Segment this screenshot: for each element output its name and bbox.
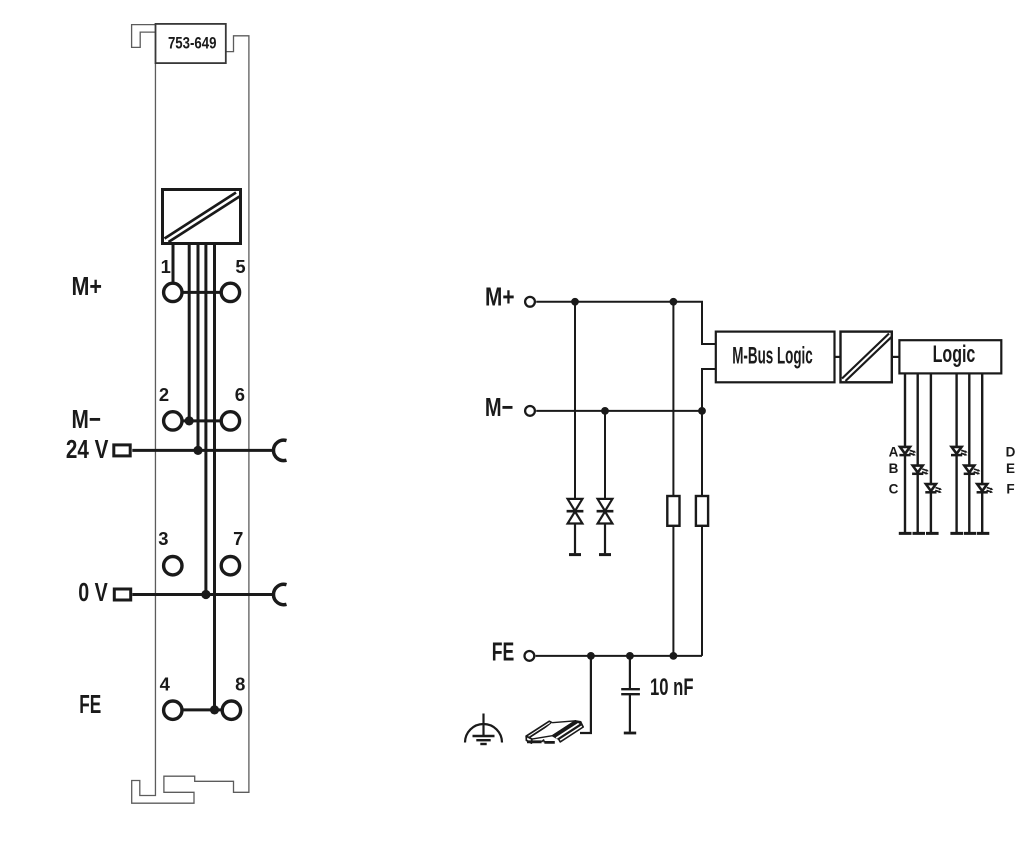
svg-text:0 V: 0 V	[78, 577, 108, 607]
svg-text:M−: M−	[72, 404, 102, 434]
svg-text:24 V: 24 V	[66, 434, 109, 464]
svg-text:B: B	[889, 461, 899, 476]
svg-text:3: 3	[158, 528, 168, 549]
svg-text:6: 6	[235, 384, 245, 405]
svg-text:5: 5	[235, 256, 245, 277]
svg-text:A: A	[889, 445, 899, 460]
svg-text:M-Bus Logic: M-Bus Logic	[732, 342, 813, 369]
svg-text:M−: M−	[485, 392, 514, 422]
svg-text:M+: M+	[72, 271, 103, 301]
svg-text:Logic: Logic	[933, 341, 976, 368]
svg-text:7: 7	[233, 528, 243, 549]
svg-text:2: 2	[159, 384, 169, 405]
svg-text:4: 4	[160, 674, 171, 695]
svg-text:E: E	[1006, 461, 1015, 476]
svg-text:D: D	[1006, 445, 1016, 460]
svg-text:753-649: 753-649	[168, 35, 217, 53]
svg-text:1: 1	[161, 256, 171, 277]
svg-text:F: F	[1006, 481, 1014, 496]
svg-text:FE: FE	[492, 637, 515, 667]
svg-text:C: C	[889, 481, 899, 496]
svg-text:M+: M+	[485, 281, 515, 311]
svg-text:10 nF: 10 nF	[650, 674, 694, 701]
svg-text:8: 8	[235, 674, 245, 695]
svg-text:FE: FE	[79, 689, 101, 719]
